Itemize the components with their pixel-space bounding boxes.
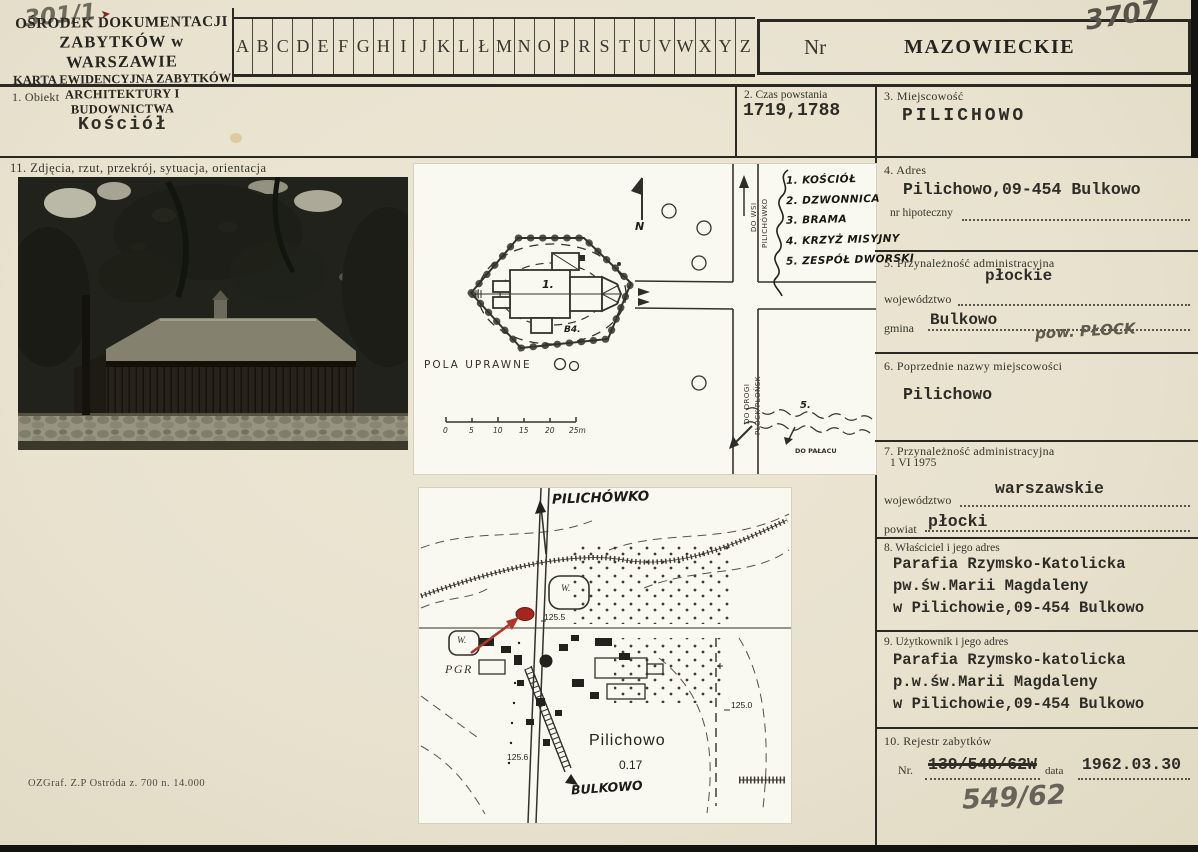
letter-cell: S [595, 19, 615, 74]
letter-cell: P [555, 19, 575, 74]
scale-tick-5: 25m [569, 426, 586, 435]
field10-crossed-register-number: 139/549/62W [928, 755, 1037, 774]
field10-date-value: 1962.03.30 [1082, 755, 1181, 774]
letter-cell: X [696, 19, 716, 74]
field5-handwritten-note: pow. PŁOCK [1035, 319, 1136, 342]
org-stamp-line1: OŚRODEK DOKUMENTACJI [11, 14, 231, 33]
scan-edge-right [1191, 0, 1198, 158]
field10-nr-label: Nr. [898, 763, 913, 778]
elevation-bottom: 125.6 [507, 752, 528, 762]
letter-cell: J [414, 19, 434, 74]
location-map-sheet: PILICHÓWKO W. W. 125.5 PGR 125.0 125.6 P… [418, 487, 792, 824]
field7-county-label: powiat [884, 522, 917, 537]
letter-cell: I [394, 19, 414, 74]
letter-cell: A [233, 19, 253, 74]
field3-value: PILICHOWO [902, 106, 1026, 126]
letter-cell: G [354, 19, 374, 74]
church-number-label: 1. [542, 278, 554, 291]
field5-voivodeship-label: województwo [884, 292, 951, 307]
field10-dotted-line1 [925, 778, 1040, 780]
elevation-center: 125.5 [544, 612, 565, 622]
letter-cell: T [615, 19, 635, 74]
town-name-label: Pilichowo [589, 732, 666, 750]
nr-label: Nr [804, 35, 826, 60]
voivodeship-stamp: MAZOWIECKIE [904, 36, 1075, 59]
alphabet-index-row: A B C D E F G H I J K L Ł M N O P R S T … [233, 17, 755, 77]
church-photo [18, 177, 408, 450]
road-to-highway-line1: DO DROGI [743, 384, 751, 424]
field7-8-separator [875, 537, 1198, 539]
field9-label: 9. Użytkownik i jego adres [884, 636, 1008, 648]
scale-tick-1: 5 [469, 426, 474, 435]
letter-cell: D [293, 19, 313, 74]
letter-cell: K [434, 19, 454, 74]
header-bottom-rule [0, 84, 1198, 87]
field8-line3: w Pilichowie,09-454 Bulkowo [893, 599, 1144, 617]
church-footprint [493, 253, 621, 333]
letter-cell: Ł [474, 19, 494, 74]
legend-item-church: 1. KOŚCIÓŁ [786, 173, 857, 187]
scan-edge-bottom [0, 845, 1198, 852]
letter-cell: N [515, 19, 535, 74]
field2-value: 1719,1788 [743, 101, 840, 121]
field4-dotted-line [962, 219, 1190, 221]
field5-dotted-line1 [958, 304, 1190, 306]
town-area-value: 0.17 [619, 758, 642, 772]
field9-line1: Parafia Rzymsko-katolicka [893, 651, 1126, 669]
field9-line2: p.w.św.Marii Magdaleny [893, 673, 1098, 691]
red-location-marker [516, 608, 534, 621]
field7-county-value: płocki [928, 512, 987, 531]
letter-cell: U [635, 19, 655, 74]
scale-tick-4: 20 [545, 426, 555, 435]
scale-tick-3: 15 [519, 426, 529, 435]
field7-dotted-line2 [925, 530, 1190, 532]
field5-voivodeship-value: płockie [985, 267, 1052, 285]
letter-cell: B [253, 19, 273, 74]
letter-cell: C [273, 19, 293, 74]
field7-voivodeship-value: warszawskie [995, 479, 1104, 498]
site-plan-sheet: 1. B4. POLA UPRAWNE N 0 5 10 15 20 25m D… [413, 163, 877, 475]
karta-ewidencyjna-zabytkow-card: 301/1➤ OŚRODEK DOKUMENTACJI ZABYTKÓW w W… [0, 0, 1198, 852]
field8-9-separator [875, 630, 1198, 632]
pond-label-top: W. [561, 584, 570, 594]
field9-line3: w Pilichowie,09-454 Bulkowo [893, 695, 1144, 713]
org-stamp-line2: ZABYTKÓW w WARSZAWIE [12, 31, 232, 73]
palace-road-label: DO PAŁACU [795, 447, 837, 455]
letter-cell: V [655, 19, 675, 74]
manor-ref-number: 5. [800, 400, 811, 411]
field7-dotted-line1 [960, 505, 1190, 507]
north-letter: N [635, 220, 644, 233]
field5-commune-value: Bulkowo [930, 311, 997, 329]
field1-2-divider [735, 87, 737, 156]
letter-cell: H [374, 19, 394, 74]
field5-6-separator [875, 352, 1198, 354]
letter-cell: L [454, 19, 474, 74]
letter-cell: E [313, 19, 333, 74]
road-to-village-line2: PILICHÓWKO [761, 198, 769, 248]
site-plan-drawing [414, 164, 876, 474]
field2-label: 2. Czas powstania [744, 89, 827, 101]
scale-tick-0: 0 [443, 426, 448, 435]
letter-cell: F [334, 19, 354, 74]
legend-item-gate: 3. BRAMA [786, 213, 847, 227]
field9-10-separator [875, 727, 1198, 729]
field10-date-label: data [1045, 765, 1063, 777]
legend-item-cross: 4. KRZYŻ MISYJNY [786, 233, 900, 248]
paper-stain [230, 133, 242, 143]
plan-note-b4: B4. [564, 325, 581, 335]
field1-value: Kościół [78, 115, 168, 135]
field10-handwritten-number: 549/62 [961, 779, 1066, 815]
field1-label: 1. Obiekt [12, 90, 59, 105]
legend-item-belfry: 2. DZWONNICA [786, 193, 880, 207]
pgr-label: PGR [445, 662, 473, 677]
field4-5-separator [875, 250, 1198, 252]
field10-label: 10. Rejestr zabytków [884, 734, 992, 749]
field8-line2: pw.św.Marii Magdaleny [893, 577, 1088, 595]
field11-label: 11. Zdjęcia, rzut, przekrój, sytuacja, o… [10, 161, 267, 176]
field3-label: 3. Miejscowość [884, 89, 964, 104]
field4-label: 4. Adres [884, 163, 926, 178]
letter-cell: O [535, 19, 555, 74]
elevation-right: 125.0 [731, 700, 752, 710]
field10-dotted-line2 [1078, 778, 1190, 780]
road-to-highway-line2: PŁOCK-PŁOŃSK [754, 376, 762, 435]
pond-label-left: W. [457, 636, 466, 646]
field6-value: Pilichowo [903, 385, 992, 404]
field5-commune-label: gmina [884, 321, 914, 336]
road-to-village-line1: DO WSI [750, 202, 758, 232]
field4-value: Pilichowo,09-454 Bulkowo [903, 180, 1141, 199]
field6-7-separator [875, 440, 1198, 442]
field7-date-line: 1 VI 1975 [890, 457, 936, 469]
letter-cell: Z [736, 19, 755, 74]
scale-tick-2: 10 [493, 426, 503, 435]
field8-line1: Parafia Rzymsko-Katolicka [893, 555, 1126, 573]
letter-cell: Y [716, 19, 736, 74]
field8-label: 8. Właściciel i jego adres [884, 542, 1000, 554]
letter-cell: M [494, 19, 514, 74]
field7-voivodeship-label: województwo [884, 493, 951, 508]
field6-label: 6. Poprzednie nazwy miejscowości [884, 359, 1062, 374]
letter-cell: W [675, 19, 695, 74]
map-village-top-label: PILICHÓWKO [552, 488, 650, 507]
printer-imprint: OZGraf. Z.P Ostróda z. 700 n. 14.000 [28, 778, 205, 789]
row1-bottom-rule [0, 156, 1198, 158]
fields-label: POLA UPRAWNE [424, 359, 532, 371]
location-map-drawing [419, 488, 791, 823]
field4-sub-label: nr hipoteczny [890, 207, 953, 219]
letter-cell: R [575, 19, 595, 74]
